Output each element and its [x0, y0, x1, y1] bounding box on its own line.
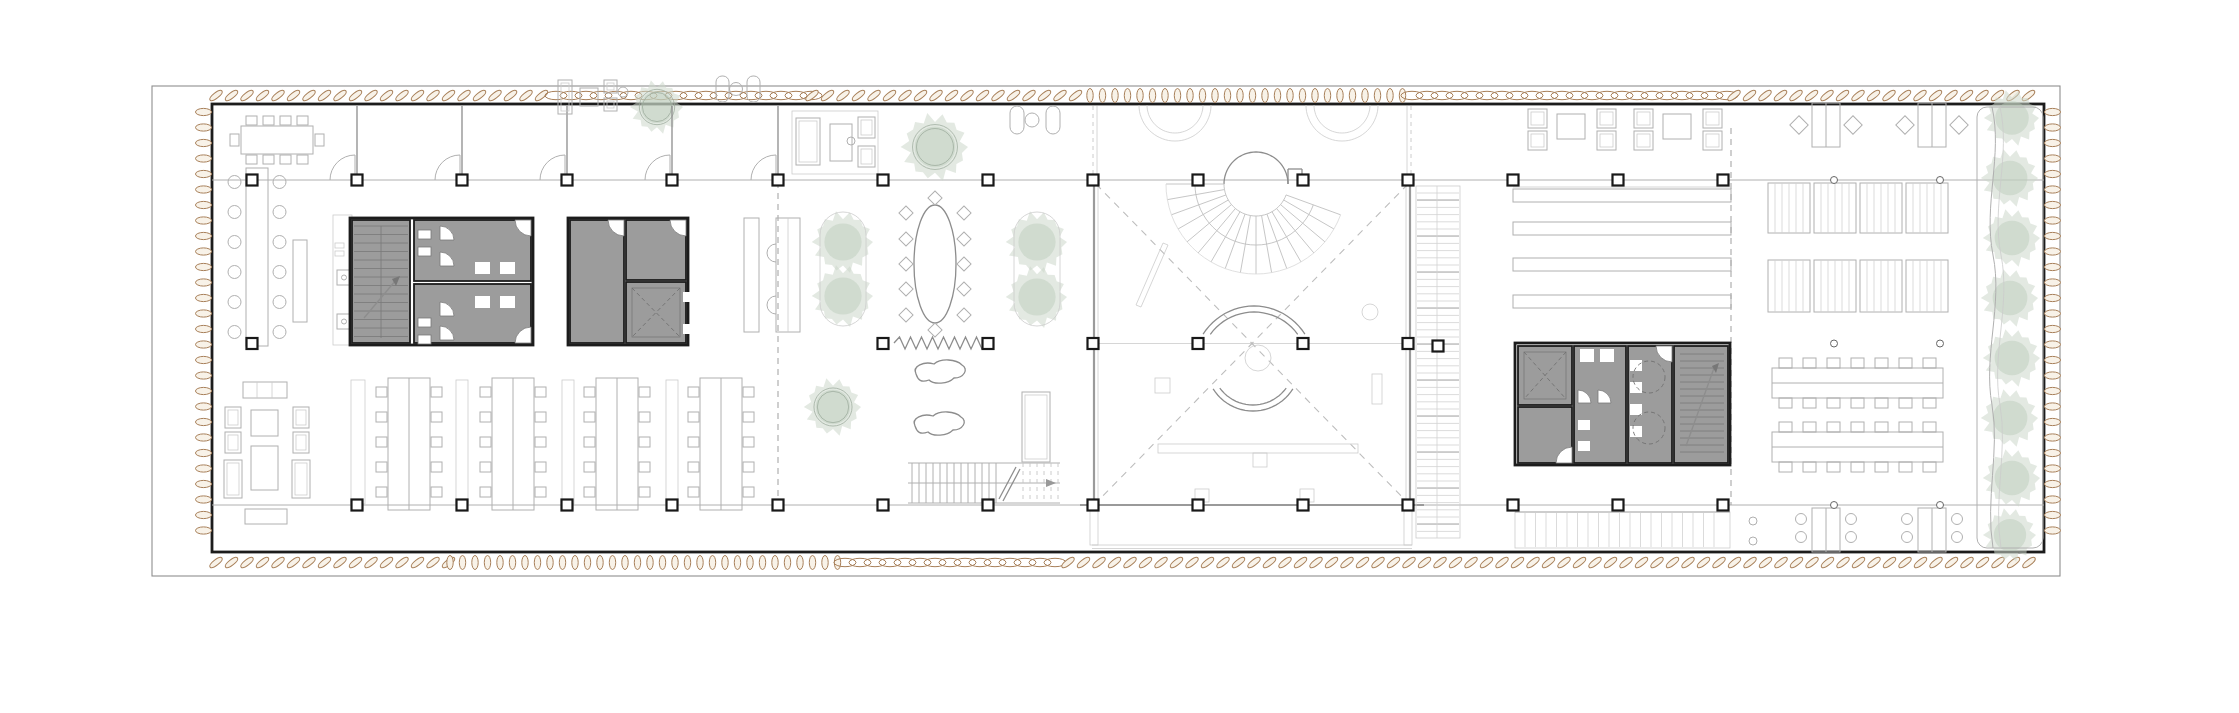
- tree-icon: [1983, 329, 2040, 387]
- structural-column: [247, 338, 258, 349]
- book-return-shelf: [1515, 512, 1757, 548]
- structural-column: [983, 175, 994, 186]
- structural-column: [1718, 175, 1729, 186]
- structural-column: [352, 175, 363, 186]
- structural-column: [457, 175, 468, 186]
- reading-room: [1768, 103, 1968, 552]
- structural-column: [1298, 175, 1309, 186]
- tree-icon: [630, 80, 683, 134]
- round-column: [1937, 340, 1944, 347]
- tree-icon: [804, 378, 861, 436]
- meeting-rooms: [230, 106, 778, 180]
- tree-icon: [812, 211, 873, 273]
- structural-column: [352, 500, 363, 511]
- structural-column: [1433, 341, 1444, 352]
- structural-column: [1088, 500, 1099, 511]
- round-column: [1937, 502, 1944, 509]
- floor-plan-viewport: [0, 0, 2239, 713]
- structural-column: [1193, 500, 1204, 511]
- tree-icon: [1006, 211, 1067, 273]
- tree-icon: [1981, 149, 2038, 207]
- west-elevator-core: [568, 218, 690, 345]
- structural-column: [1718, 500, 1729, 511]
- tree-icon: [1006, 266, 1067, 328]
- structural-column: [1403, 175, 1414, 186]
- structural-column: [878, 338, 889, 349]
- structural-column: [1508, 175, 1519, 186]
- structural-column: [1508, 500, 1519, 511]
- structural-column: [1298, 338, 1309, 349]
- structural-column: [667, 500, 678, 511]
- structural-column: [983, 338, 994, 349]
- tree-icon: [1981, 389, 2038, 447]
- tree-icon: [812, 265, 873, 327]
- structural-column: [773, 175, 784, 186]
- structural-column: [1088, 338, 1099, 349]
- round-column: [1831, 340, 1838, 347]
- tiered-seating: [1416, 186, 1460, 538]
- structural-column: [562, 500, 573, 511]
- round-column: [1831, 177, 1838, 184]
- structural-column: [1613, 175, 1624, 186]
- structural-column: [773, 500, 784, 511]
- structural-column: [878, 175, 889, 186]
- west-stair-wc-core: [350, 218, 533, 345]
- trees: [630, 80, 2040, 562]
- structural-column: [1403, 338, 1414, 349]
- round-column: [1831, 502, 1838, 509]
- structural-column: [247, 175, 258, 186]
- structural-column: [1298, 500, 1309, 511]
- structural-column: [1193, 175, 1204, 186]
- structural-column: [878, 500, 889, 511]
- structural-column: [667, 175, 678, 186]
- structural-column: [457, 500, 468, 511]
- structural-column: [1403, 500, 1414, 511]
- east-core: [1515, 343, 1730, 465]
- tree-icon: [1981, 269, 2038, 327]
- structural-column: [983, 500, 994, 511]
- architectural-floor-plan: [0, 0, 2239, 713]
- library-stacks: [1513, 109, 1731, 308]
- structural-column: [562, 175, 573, 186]
- atrium: [1080, 105, 1424, 549]
- structural-column: [1193, 338, 1204, 349]
- structural-column: [1613, 500, 1624, 511]
- tree-icon: [901, 113, 968, 181]
- tree-icon: [1983, 209, 2040, 267]
- round-column: [1937, 177, 1944, 184]
- structural-column: [1088, 175, 1099, 186]
